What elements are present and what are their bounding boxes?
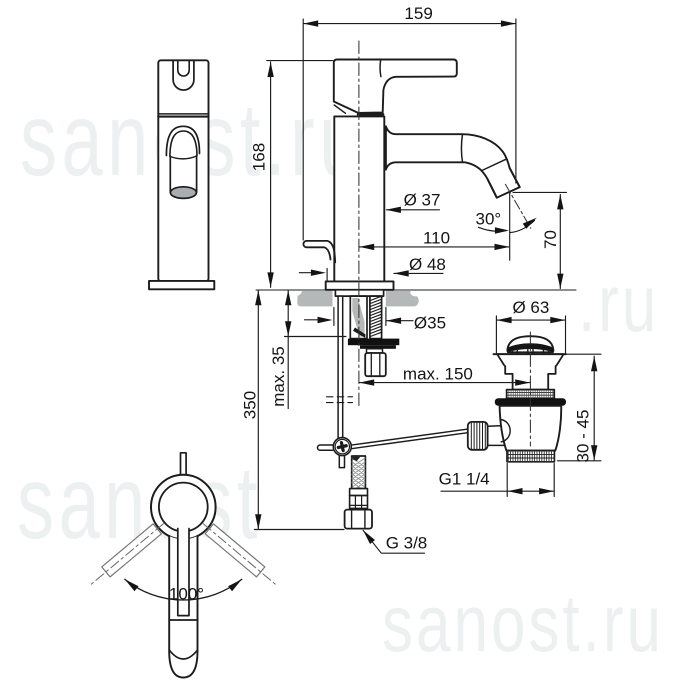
svg-text:Ø35: Ø35 (414, 313, 446, 332)
svg-text:sanost.ru: sanost.ru (382, 579, 664, 669)
svg-text:G1 1/4: G1 1/4 (439, 470, 490, 489)
svg-text:Ø 63: Ø 63 (512, 298, 549, 317)
svg-text:350: 350 (241, 391, 260, 419)
svg-text:.ru: .ru (578, 259, 659, 349)
svg-text:70: 70 (541, 230, 560, 249)
svg-text:Ø 48: Ø 48 (409, 255, 446, 274)
svg-text:Ø 37: Ø 37 (404, 191, 441, 210)
svg-text:30°: 30° (476, 210, 502, 229)
svg-text:max. 150: max. 150 (403, 364, 473, 383)
svg-text:110: 110 (423, 228, 450, 247)
svg-text:G 3/8: G 3/8 (386, 534, 428, 553)
svg-text:100°: 100° (169, 585, 204, 604)
svg-text:max. 35: max. 35 (269, 346, 288, 406)
svg-text:30 - 45: 30 - 45 (574, 410, 593, 463)
svg-text:159: 159 (404, 4, 432, 23)
svg-text:168: 168 (250, 143, 269, 171)
